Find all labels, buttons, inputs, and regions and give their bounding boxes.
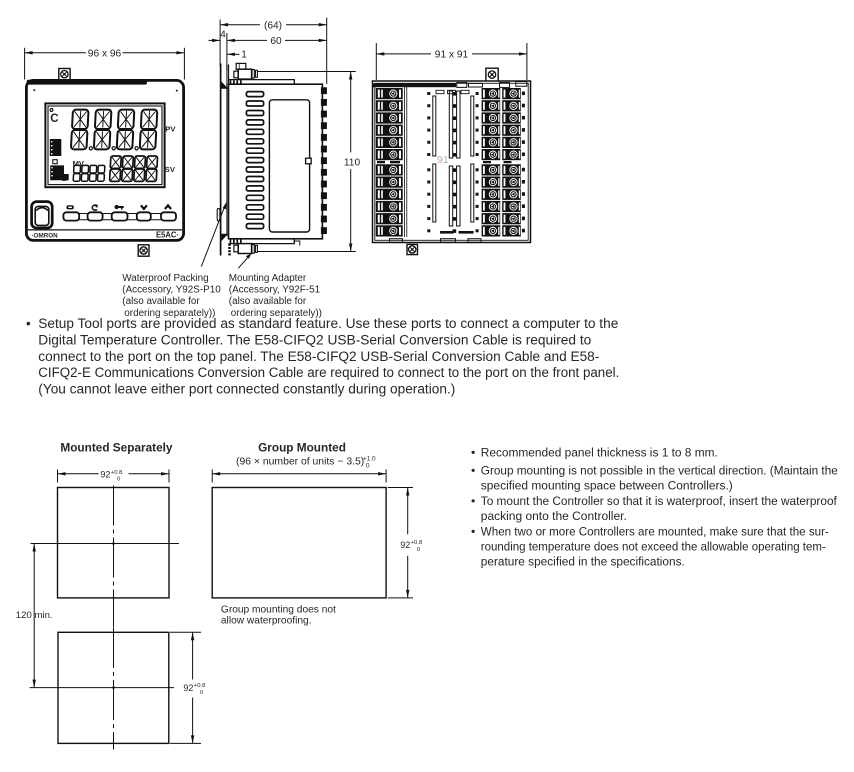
svg-text:Digital Temperature Controller: Digital Temperature Controller. The E58-… (38, 332, 591, 347)
svg-text:(96 × number of units − 3.5): (96 × number of units − 3.5) (236, 457, 364, 468)
svg-text:•: • (26, 316, 31, 331)
svg-text:•: • (471, 494, 475, 508)
svg-text:E5AC·: E5AC· (156, 231, 179, 240)
svg-text:•: • (471, 446, 475, 460)
svg-text:Recommended panel thickness is: Recommended panel thickness is 1 to 8 mm… (481, 446, 718, 460)
svg-text:1: 1 (241, 50, 247, 61)
svg-text:perature specified in the spec: perature specified in the specifications… (481, 555, 685, 569)
svg-text:91 x 91: 91 x 91 (435, 49, 469, 60)
svg-text:•: • (471, 464, 475, 478)
svg-text:allow waterproofing.: allow waterproofing. (221, 615, 312, 626)
svg-text:+0.8: +0.8 (411, 540, 423, 546)
svg-text:•: • (471, 525, 475, 539)
svg-text:+0.8: +0.8 (194, 683, 206, 689)
svg-text:Mounting Adapter: Mounting Adapter (229, 273, 307, 284)
svg-text:packing onto the Controller.: packing onto the Controller. (481, 509, 627, 523)
svg-text:4: 4 (220, 29, 226, 40)
svg-text:Waterproof Packing: Waterproof Packing (122, 273, 208, 284)
svg-text:CIFQ2-E Communications Convers: CIFQ2-E Communications Conversion Cable … (38, 365, 619, 380)
svg-text:Group mounting does not: Group mounting does not (221, 605, 336, 616)
svg-text:92: 92 (400, 540, 410, 550)
svg-text:SV: SV (165, 165, 176, 174)
svg-text:·OMRON: ·OMRON (32, 232, 58, 239)
svg-text:(Accessory, Y92F-51: (Accessory, Y92F-51 (229, 285, 321, 296)
svg-text:(64): (64) (264, 20, 282, 31)
svg-text:(Accessory, Y92S-P10: (Accessory, Y92S-P10 (122, 285, 221, 296)
svg-text:(You cannot leave either port: (You cannot leave either port connected … (38, 382, 455, 397)
svg-text:60: 60 (270, 36, 282, 47)
svg-text:0: 0 (366, 462, 370, 469)
svg-text:Group mounting is not possible: Group mounting is not possible in the ve… (481, 464, 838, 478)
svg-text:Setup Tool ports are provided: Setup Tool ports are provided as standar… (38, 316, 618, 331)
svg-text:120 min.: 120 min. (16, 610, 53, 621)
svg-text:+1.0: +1.0 (363, 455, 376, 462)
svg-text:(also available for: (also available for (229, 296, 307, 307)
svg-text:When two or more Controllers a: When two or more Controllers are mounted… (481, 525, 829, 539)
svg-text:110: 110 (344, 157, 361, 168)
svg-text:Mounted Separately: Mounted Separately (60, 440, 173, 454)
svg-text:(also available for: (also available for (122, 296, 200, 307)
svg-text:PV: PV (165, 125, 176, 134)
svg-text:C: C (50, 113, 58, 125)
svg-text:specified mounting space betwe: specified mounting space between Control… (481, 479, 733, 493)
svg-text:92: 92 (183, 683, 193, 693)
svg-text:connect to the port on the top: connect to the port on the top panel. Th… (38, 349, 599, 364)
svg-text:91: 91 (437, 154, 449, 166)
svg-text:Group Mounted: Group Mounted (258, 440, 346, 454)
svg-text:96 x 96: 96 x 96 (88, 49, 122, 60)
svg-text:+0.8: +0.8 (111, 470, 123, 476)
svg-text:To mount the Controller so tha: To mount the Controller so that it is wa… (481, 494, 838, 508)
svg-text:92: 92 (100, 470, 110, 480)
svg-text:rounding temperature does not: rounding temperature does not exceed the… (481, 540, 826, 554)
